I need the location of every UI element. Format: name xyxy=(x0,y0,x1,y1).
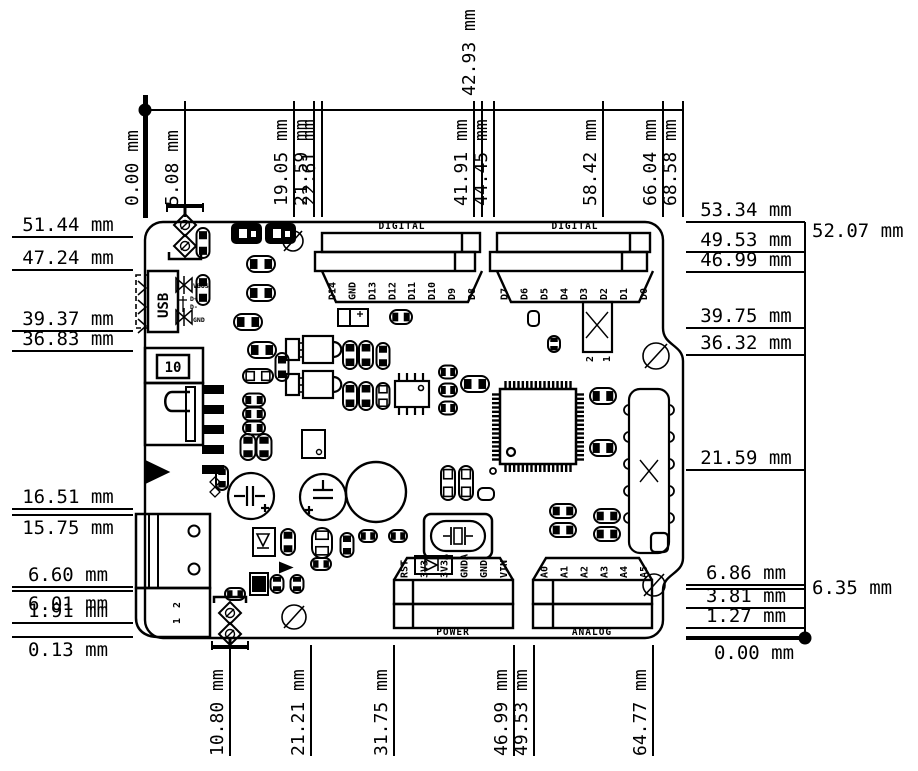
dim-label-top-42.93: 42.93 mm xyxy=(459,0,481,96)
dim-line-right-1.27 xyxy=(686,627,805,629)
pin-label-D7: D7 xyxy=(500,288,511,300)
dim-label-right-0.00: 0.00 mm xyxy=(698,643,810,664)
pin-label-A0: A0 xyxy=(540,566,551,578)
dim-line-left-15.75 xyxy=(12,514,133,516)
dim-label-left-0.13: 0.13 mm xyxy=(8,640,128,661)
pin-label-A2: A2 xyxy=(579,566,590,578)
pin-label-D4: D4 xyxy=(559,288,570,300)
dim-label-top-68.58: 68.58 mm xyxy=(660,102,682,206)
dim-tick-bottom-10.80 xyxy=(229,645,231,756)
dim-label-left-6.60: 6.60 mm xyxy=(8,565,128,586)
jack-pin-1: 1 xyxy=(172,618,183,624)
dim-tick-top-22.61 xyxy=(321,101,323,217)
dim-line-left-6.01 xyxy=(12,590,133,592)
pin-label-RST: RST xyxy=(400,560,411,578)
pin-label-D12: D12 xyxy=(387,282,398,300)
ref-10-label: 10 xyxy=(165,360,182,376)
pin-label-D14: D14 xyxy=(328,282,339,300)
dim-label-left-1.91: 1.91 mm xyxy=(8,601,128,622)
dim-line-left-6.60 xyxy=(12,586,133,588)
pin-label-GND: GND xyxy=(347,282,358,300)
pin-label-D1: D1 xyxy=(619,288,630,300)
dim-line-right-39.75 xyxy=(686,327,805,329)
aux-pin-1: 1 xyxy=(602,356,613,362)
usb-signal-dminus: D- xyxy=(190,303,198,311)
pin-label-D3: D3 xyxy=(579,288,590,300)
dim-label-right-6.86: 6.86 mm xyxy=(690,563,802,584)
dim-label-right-46.99: 46.99 mm xyxy=(690,250,802,271)
pin-label-VIN: VIN xyxy=(499,560,510,578)
dim-tick-top-58.42 xyxy=(602,101,604,217)
dim-line-left-16.51 xyxy=(12,508,133,510)
pin-label-D5: D5 xyxy=(539,288,550,300)
analog-label: ANALOG xyxy=(572,627,612,638)
dim-label-top-44.45: 44.45 mm xyxy=(471,102,493,206)
dim-tick-bottom-31.75 xyxy=(393,645,395,756)
dim-line-left-47.24 xyxy=(12,269,133,271)
dim-line-left-0.13 xyxy=(12,636,133,638)
dim-label-right-1.27: 1.27 mm xyxy=(690,606,802,627)
power-label: POWER xyxy=(436,627,470,638)
dim-label-left-16.51: 16.51 mm xyxy=(8,487,128,508)
dim-label-right-49.53: 49.53 mm xyxy=(690,230,802,251)
dim-label-bottom-46.99: 46.99 mm xyxy=(491,652,513,756)
dim-label-bottom-31.75: 31.75 mm xyxy=(371,652,393,756)
dim-line-right-21.59 xyxy=(686,469,805,471)
pin-label-D11: D11 xyxy=(407,282,418,300)
dim-line-left-51.44 xyxy=(12,236,133,238)
dim-line-left-36.83 xyxy=(12,350,133,352)
pin-label-D6: D6 xyxy=(519,288,530,300)
dim-label-top-22.61: 22.61 mm xyxy=(299,102,321,206)
dim-tick-top-44.45 xyxy=(493,101,495,217)
dim-tick-bottom-21.21 xyxy=(310,645,312,756)
dim-line-right-0.00 xyxy=(686,636,805,640)
dim-line-right-53.34 xyxy=(686,221,805,223)
dim-line-left-1.91 xyxy=(12,622,133,624)
dimension-drawing: USB VBUS D+ D- GND 10 xyxy=(0,0,918,771)
dim-label-right-21.59: 21.59 mm xyxy=(690,448,802,469)
dim-label-right-53.34: 53.34 mm xyxy=(690,200,802,221)
dim-label-left-36.83: 36.83 mm xyxy=(8,329,128,350)
dim-tick-bottom-64.77 xyxy=(652,645,654,756)
dim-label-top-58.42: 58.42 mm xyxy=(580,102,602,206)
dim-label-right-39.75: 39.75 mm xyxy=(690,306,802,327)
pin-label-D9: D9 xyxy=(447,288,458,300)
pin-label-GNDA: GNDA xyxy=(459,554,470,578)
dim-label-left-47.24: 47.24 mm xyxy=(8,248,128,269)
pin-label-3V3: 3V3 xyxy=(419,560,430,578)
pin-label-A1: A1 xyxy=(559,566,570,578)
dim-label-top-41.91: 41.91 mm xyxy=(451,102,473,206)
dim-line-right-46.99 xyxy=(686,271,805,273)
dim-tick-top-68.58 xyxy=(682,101,684,217)
dim-tick-top-5.08 xyxy=(184,101,186,217)
dim-label-right-6.35: 6.35 mm xyxy=(812,578,917,599)
dim-label-top-5.08: 5.08 mm xyxy=(162,102,184,206)
pin-label-D8: D8 xyxy=(467,288,478,300)
pin-label-A3: A3 xyxy=(599,566,610,578)
usb-signal-gnd: GND xyxy=(193,316,205,324)
usb-label: USB xyxy=(156,293,172,318)
pin-label-A4: A4 xyxy=(619,566,630,578)
pin-label-A5: A5 xyxy=(639,566,650,578)
pin-label-D2: D2 xyxy=(599,288,610,300)
dim-label-bottom-64.77: 64.77 mm xyxy=(630,652,652,756)
pin-label-D10: D10 xyxy=(427,282,438,300)
jack-pin-2: 2 xyxy=(172,602,183,608)
aux-pin-2: 2 xyxy=(585,356,596,362)
digital-1-label: DIGITAL xyxy=(378,221,425,232)
dim-label-right-52.07: 52.07 mm xyxy=(812,221,917,242)
dim-label-top-66.04: 66.04 mm xyxy=(640,102,662,206)
pin-label-3V3A: 3V3A xyxy=(439,554,450,578)
dim-label-top-0.00: 0.00 mm xyxy=(122,102,144,206)
pin-label-D13: D13 xyxy=(367,282,378,300)
digital-2-label: DIGITAL xyxy=(551,221,598,232)
pin-label-GND: GND xyxy=(479,560,490,578)
dim-line-right-36.32 xyxy=(686,354,805,356)
dim-label-right-36.32: 36.32 mm xyxy=(690,333,802,354)
dim-label-left-51.44: 51.44 mm xyxy=(8,215,128,236)
dim-label-bottom-10.80: 10.80 mm xyxy=(207,652,229,756)
dim-label-left-15.75: 15.75 mm xyxy=(8,518,128,539)
dim-label-bottom-21.21: 21.21 mm xyxy=(288,652,310,756)
pin-label-D0: D0 xyxy=(639,288,650,300)
dim-label-bottom-49.53: 49.53 mm xyxy=(511,652,533,756)
